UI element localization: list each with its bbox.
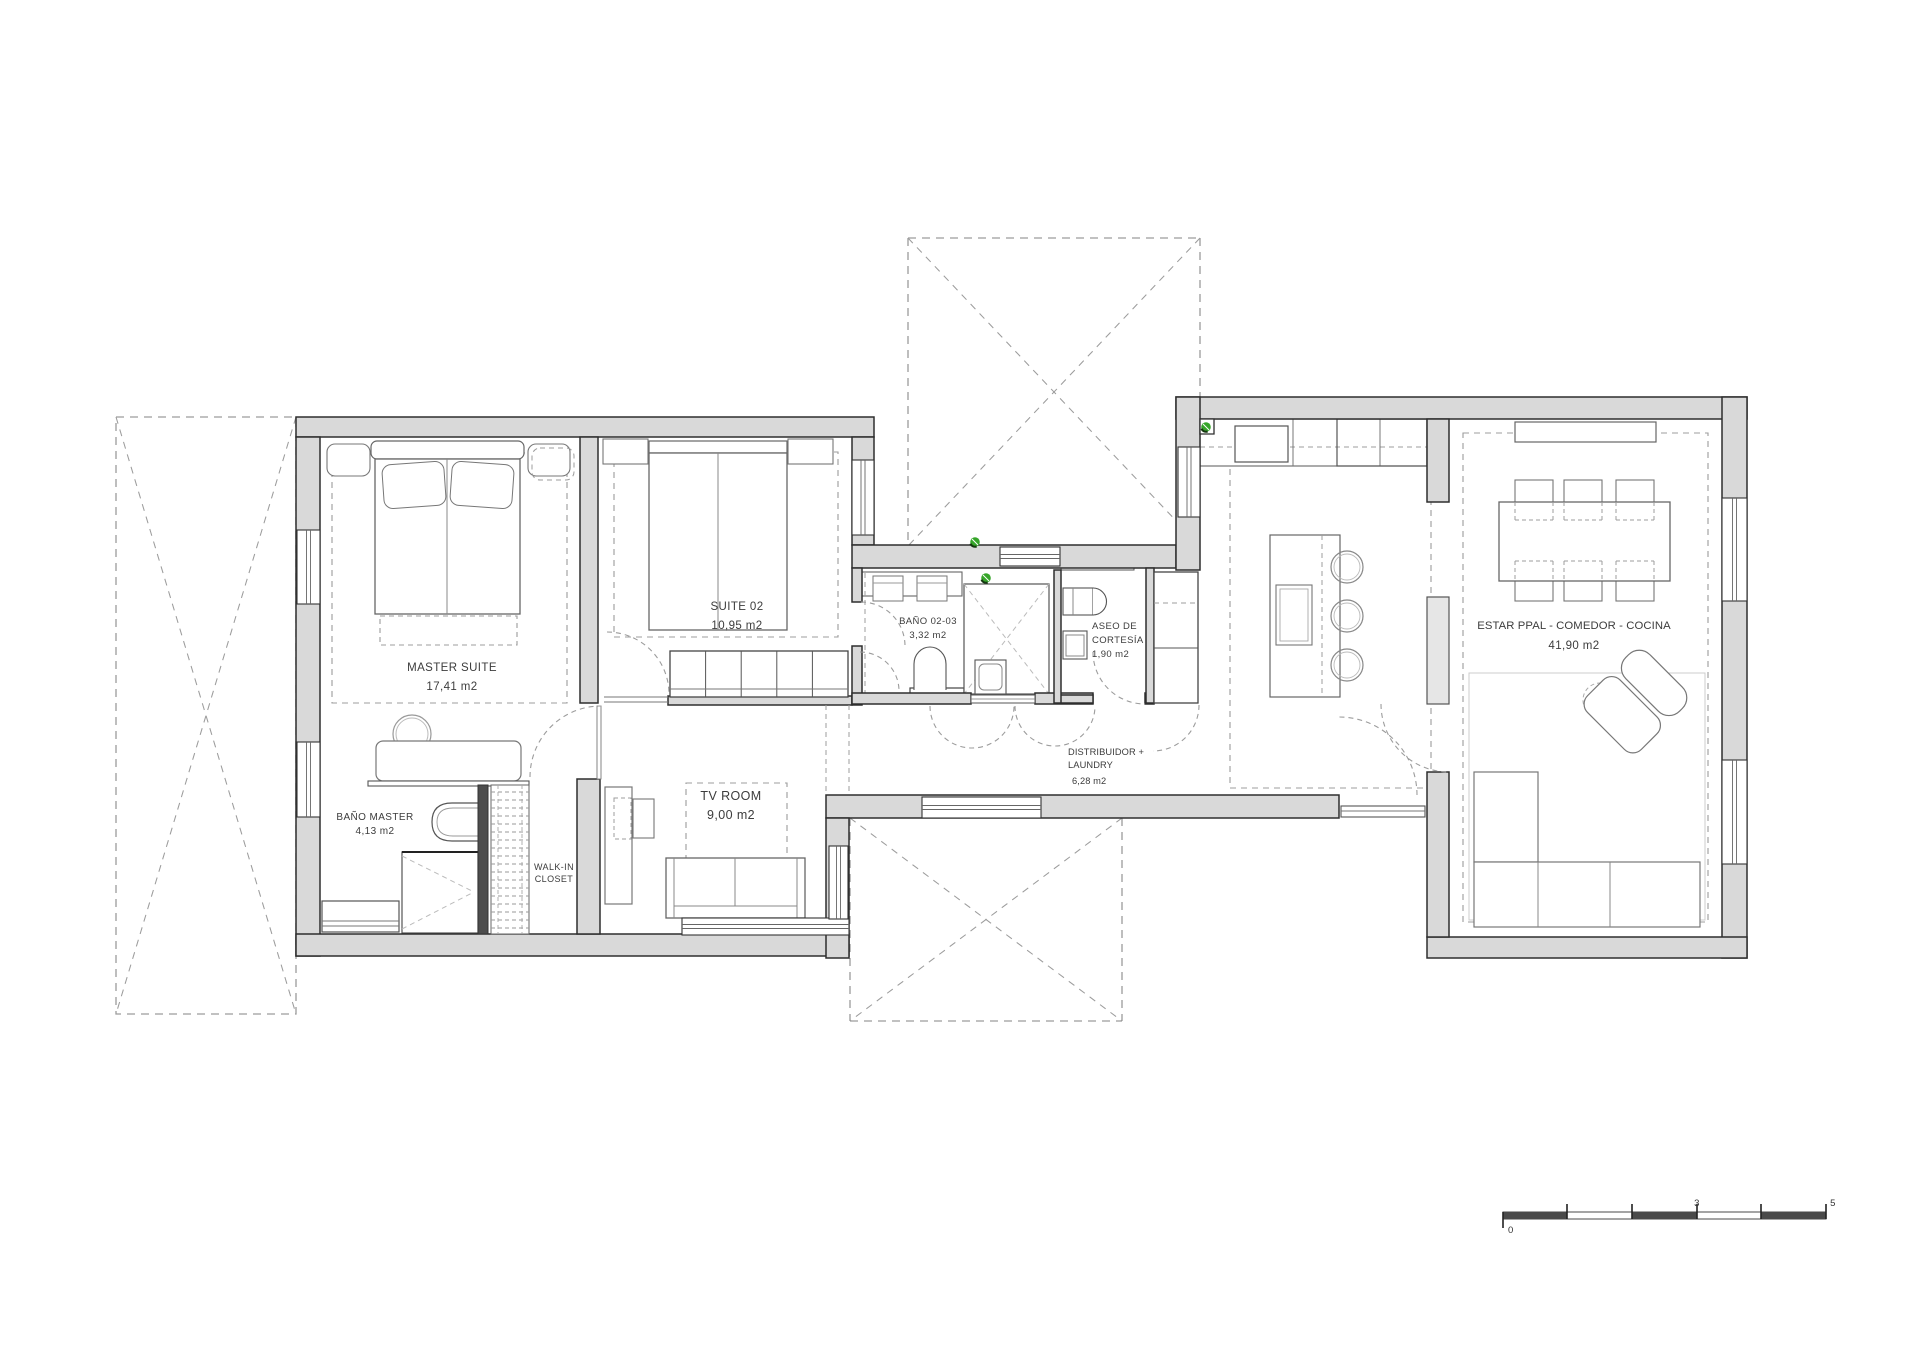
svg-text:ASEO DE: ASEO DE — [1092, 621, 1137, 632]
svg-text:1,90 m2: 1,90 m2 — [1092, 649, 1129, 660]
svg-text:DISTRIBUIDOR +: DISTRIBUIDOR + — [1068, 747, 1144, 757]
svg-text:SUITE 02: SUITE 02 — [710, 601, 763, 613]
svg-text:41,90 m2: 41,90 m2 — [1548, 640, 1599, 652]
svg-text:5: 5 — [1830, 1198, 1836, 1209]
svg-text:BAÑO 02-03: BAÑO 02-03 — [899, 616, 957, 627]
svg-text:3: 3 — [1694, 1198, 1700, 1209]
svg-text:17,41 m2: 17,41 m2 — [426, 681, 477, 693]
svg-text:10,95 m2: 10,95 m2 — [711, 620, 762, 632]
svg-text:0: 0 — [1508, 1225, 1514, 1236]
svg-text:WALK-IN: WALK-IN — [534, 862, 574, 872]
svg-text:BAÑO MASTER: BAÑO MASTER — [336, 810, 413, 823]
svg-text:6,28 m2: 6,28 m2 — [1072, 776, 1106, 786]
svg-text:MASTER SUITE: MASTER SUITE — [407, 662, 497, 674]
svg-text:CLOSET: CLOSET — [535, 874, 574, 884]
svg-text:ESTAR PPAL - COMEDOR - COCINA: ESTAR PPAL - COMEDOR - COCINA — [1477, 620, 1671, 632]
svg-text:CORTESÍA: CORTESÍA — [1092, 635, 1144, 646]
svg-text:3,32 m2: 3,32 m2 — [909, 630, 946, 641]
svg-text:LAUNDRY: LAUNDRY — [1068, 760, 1113, 770]
svg-text:9,00 m2: 9,00 m2 — [707, 808, 755, 822]
svg-text:4,13 m2: 4,13 m2 — [356, 826, 395, 837]
svg-text:TV ROOM: TV ROOM — [700, 789, 761, 803]
